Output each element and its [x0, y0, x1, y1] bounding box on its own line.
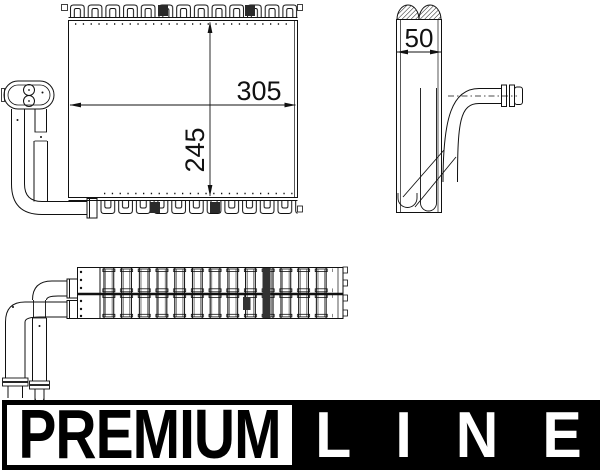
dome-right [419, 5, 441, 20]
dim-height-label: 245 [180, 127, 210, 172]
dimension-245: 245 [180, 22, 212, 197]
fin-row-top [69, 3, 298, 18]
logo-premium-box: PREMIUM [2, 400, 297, 470]
logo-line-box: LINE [297, 400, 600, 470]
dimension-305: 305 [70, 76, 297, 107]
dome-left [397, 5, 419, 20]
premium-line-logo: PREMIUM LINE [2, 400, 600, 470]
bottom-view [3, 267, 348, 403]
logo-premium-text: PREMIUM [18, 400, 280, 470]
dimension-50: 50 [397, 23, 442, 54]
front-view-pipes [12, 109, 98, 218]
inlet-outlet-flange [2, 81, 55, 109]
fin-row-bottom [99, 201, 298, 217]
dim-depth-label: 50 [405, 23, 434, 53]
side-internal-pipes [398, 88, 456, 211]
dim-width-label: 305 [236, 76, 281, 106]
side-view: 50 [397, 5, 523, 213]
product-image: 305 245 [0, 0, 600, 472]
side-elbow-pipe [443, 85, 523, 182]
bottom-view-pipes [3, 279, 78, 403]
front-view: 305 245 [2, 3, 303, 218]
logo-line-text: LINE [315, 403, 600, 468]
